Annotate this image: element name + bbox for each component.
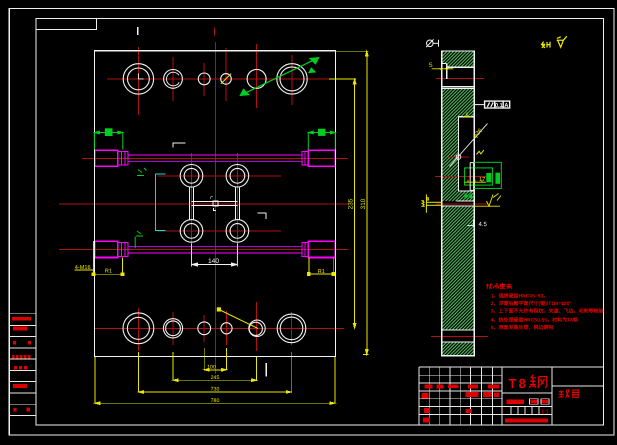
svg-text:5: 5	[429, 62, 433, 69]
svg-text:1:1: 1:1	[541, 409, 549, 415]
svg-text:R1: R1	[318, 269, 325, 275]
svg-text:2、淬硬后磨平面尺寸(锻)/T1M=180°: 2、淬硬后磨平面尺寸(锻)/T1M=180°	[491, 300, 572, 307]
svg-text:730: 730	[211, 387, 220, 393]
svg-text:T8: T8	[509, 376, 529, 391]
svg-text:235: 235	[348, 198, 355, 209]
svg-text:0.1: 0.1	[495, 103, 503, 109]
svg-text:5、表面发黑处理，锐边倒钝: 5、表面发黑处理，锐边倒钝	[491, 324, 554, 331]
svg-text:4.5: 4.5	[479, 221, 488, 228]
svg-text:3、上下面不允许有裂纹、夹渣、飞边、毛刺等缺陷: 3、上下面不允许有裂纹、夹渣、飞边、毛刺等缺陷	[491, 308, 604, 315]
svg-text:140: 140	[208, 258, 219, 265]
svg-text:780: 780	[211, 398, 220, 404]
svg-text:310: 310	[360, 198, 367, 209]
svg-text:100: 100	[207, 364, 216, 370]
svg-text:4、热处理硬度HRC50-55，材料为T8钢: 4、热处理硬度HRC50-55，材料为T8钢	[491, 316, 578, 323]
svg-text:1、调质硬度HRC45~50。: 1、调质硬度HRC45~50。	[491, 292, 549, 299]
svg-text:R1: R1	[105, 269, 112, 275]
svg-text:245: 245	[211, 375, 220, 381]
